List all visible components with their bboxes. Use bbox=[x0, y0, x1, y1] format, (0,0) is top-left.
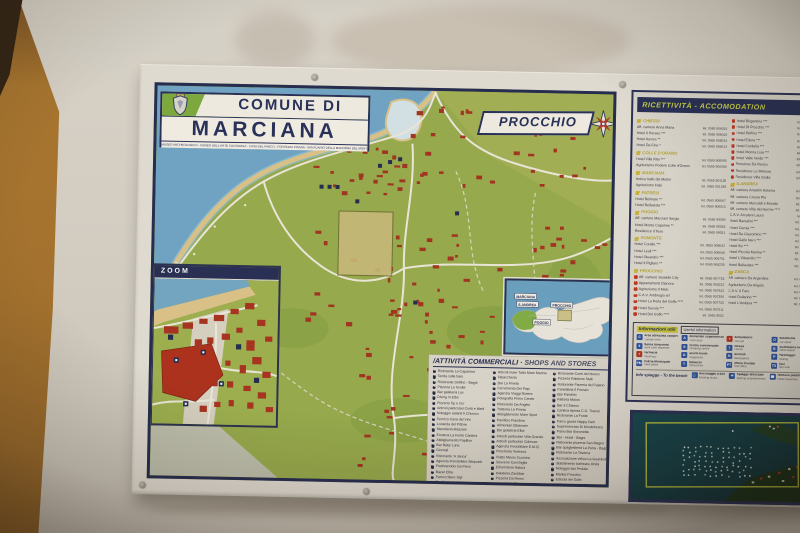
info-legend-item: BDistributore benzinaPetrol station bbox=[771, 345, 800, 353]
marker-dot: 6 bbox=[633, 306, 637, 310]
shop-number-marker: 64 bbox=[551, 473, 554, 476]
info-label: TabacchiTobacconist bbox=[689, 361, 704, 368]
info-legend-item: +AmbulatorioFirst aid bbox=[727, 336, 769, 344]
info-label: Giochi bimbiPlayground bbox=[689, 352, 708, 359]
flag-icon bbox=[636, 151, 641, 155]
playground-icon: G bbox=[681, 352, 687, 358]
accommodation-entry: Hotel Il Pigliaro **tel. 0565 906235 bbox=[634, 260, 725, 268]
marker-dot: 4 bbox=[731, 138, 735, 142]
screw bbox=[620, 82, 626, 88]
info-label: Area attrezzata camperCamper area bbox=[644, 334, 678, 342]
food-shop-icon: A bbox=[682, 335, 688, 341]
shop-number-marker: 3 bbox=[433, 381, 436, 384]
info-label: ChiesaChurch bbox=[734, 344, 744, 351]
marker-dot: 2 bbox=[634, 281, 638, 285]
info-legend-item: TTabacchiTobacconist bbox=[681, 360, 723, 368]
info-extra-items: ⚓Ancoraggio a boeMooring buoys☂Spiagge a… bbox=[691, 372, 800, 381]
shop-number-marker: 55 bbox=[552, 425, 555, 428]
info-label: Centro commercialeShopping centre bbox=[689, 344, 719, 352]
shop-number-marker: 30 bbox=[492, 408, 495, 411]
marker-dot: 1 bbox=[731, 119, 735, 123]
accommodation-phone: tel. 0565 908015 bbox=[701, 203, 726, 210]
map-panel: COMUNE DI MARCIANA MUSEO ARCHEOLOGICO - … bbox=[147, 82, 617, 487]
info-label-en: Parking bbox=[779, 357, 796, 361]
shops-title-it: ATTIVITÀ COMMERCIALI bbox=[435, 358, 518, 367]
info-label-en: Petrol station bbox=[779, 349, 800, 353]
island-inset: MARCIANA S.ANDREA POGGIO PROCCHIO bbox=[503, 278, 616, 356]
shop-number-marker: 60 bbox=[551, 452, 554, 455]
flag-icon bbox=[728, 270, 733, 274]
info-label: AutofficinaCar repair bbox=[779, 337, 795, 344]
info-label-en: Pharmacy bbox=[644, 355, 658, 359]
accommodation-phone: tel. 0565 906013 bbox=[702, 143, 727, 150]
area-label: PROCCHIO bbox=[480, 111, 617, 137]
post-office-icon: PT bbox=[726, 361, 732, 367]
info-legend-item: TXTaxiTaxi rank bbox=[771, 362, 800, 370]
marker-dot: 6 bbox=[731, 150, 735, 154]
aerial-bay-photo bbox=[631, 413, 800, 503]
shop-number-marker: 53 bbox=[552, 415, 555, 418]
accommodation-columns: CHIESSIAff. camere Anna Mariatel. 0565 9… bbox=[633, 116, 800, 324]
accommodation-entry: 7Hotel Del Golfo ****tel. 0565 9502 bbox=[633, 311, 724, 319]
info-label-en: Bank cash dispenser bbox=[644, 346, 670, 350]
screw bbox=[363, 489, 369, 495]
title-line2: MARCIANA bbox=[161, 116, 367, 143]
shop-number-marker: 1 bbox=[433, 370, 436, 373]
coat-of-arms-icon bbox=[170, 94, 190, 116]
map-sign-board: COMUNE DI MARCIANA MUSEO ARCHEOLOGICO - … bbox=[131, 64, 800, 508]
accommodation-name: Residence Villa Giulia bbox=[735, 174, 794, 181]
shop-number-marker: 39 bbox=[491, 456, 494, 459]
info-label-en: Shopping centre bbox=[689, 347, 719, 351]
zoom-inset-map bbox=[152, 278, 279, 425]
info-label: FarmaciaPharmacy bbox=[644, 351, 658, 358]
shop-number-marker: 47 bbox=[553, 383, 556, 386]
photo-of-map-sign: { "colors":{"navy":"#232d56","map_green"… bbox=[0, 0, 800, 533]
shop-number-marker: 32 bbox=[492, 419, 495, 422]
marker-dot: 8 bbox=[731, 162, 735, 166]
info-title-it: Informazioni utili bbox=[637, 326, 678, 333]
shop-number-marker: 31 bbox=[492, 414, 495, 417]
shop-number-marker: 63 bbox=[551, 468, 554, 471]
shop-number-marker: 36 bbox=[491, 440, 494, 443]
camper-area-icon: C bbox=[637, 334, 643, 340]
shop-number-marker: 25 bbox=[493, 382, 496, 385]
info-label-en: Mooring buoys bbox=[699, 376, 725, 380]
shop-entry: 65Edicola del Golfo bbox=[551, 477, 607, 483]
aerial-photo-panel bbox=[628, 410, 800, 506]
svg-text:S.ANDREA: S.ANDREA bbox=[518, 303, 537, 307]
shop-number-marker: 62 bbox=[551, 462, 554, 465]
shop-number-marker: 6 bbox=[432, 396, 435, 399]
shop-number-marker: 8 bbox=[432, 407, 435, 410]
shop-name: Bar Centrale bbox=[435, 480, 455, 486]
accommodation-title: RICETTIVITÀ - ACCOMODATION bbox=[637, 97, 800, 116]
accommodation-phone: tel. 0565 908031 bbox=[794, 301, 800, 308]
shop-number-marker: 13 bbox=[432, 433, 435, 436]
flag-icon bbox=[636, 119, 641, 123]
shop-number-marker: 14 bbox=[431, 439, 434, 442]
shop-number-marker: 12 bbox=[432, 428, 435, 431]
info-label: Ufficio PostalePost office bbox=[734, 361, 756, 368]
accommodation-entry: 10Residence Villa Giuliatel. 0565 907526 bbox=[730, 174, 800, 182]
marker-dot: 3 bbox=[634, 287, 638, 291]
accommodation-phone: tel. 0565 901339 bbox=[702, 183, 727, 190]
accommodation-name: Hotel Bellavista *** bbox=[729, 261, 793, 268]
info-title-en: Useful information bbox=[680, 326, 718, 334]
info-label-en: Playground bbox=[689, 356, 708, 360]
shop-number-marker: 54 bbox=[552, 420, 555, 423]
info-legend-item: PTUfficio PostalePost office bbox=[726, 361, 768, 369]
flag-icon bbox=[633, 269, 638, 273]
marker-dot: 7 bbox=[731, 156, 735, 160]
shop-number-marker: 65 bbox=[551, 478, 554, 481]
info-label-en: Public telephone bbox=[777, 377, 800, 381]
compass-rose-icon bbox=[590, 110, 617, 137]
svg-text:MARCIANA: MARCIANA bbox=[516, 295, 536, 299]
accommodation-entry: Hotel Bellavista ***tel. 0565 908015 bbox=[635, 202, 726, 210]
info-label: Banca bancomatBank cash dispenser bbox=[644, 343, 670, 351]
info-label-en: Newspapers bbox=[734, 357, 750, 361]
accommodation-phone: tel. 0565 908268 bbox=[702, 163, 727, 170]
pharmacy-icon: + bbox=[636, 351, 642, 357]
flag-icon bbox=[635, 191, 640, 195]
info-label: ParcheggioParking bbox=[779, 354, 796, 361]
info-label: Polizia MunicipaleTown police bbox=[644, 360, 671, 368]
bank-icon: € bbox=[636, 343, 642, 349]
shop-number-marker: 44 bbox=[491, 482, 494, 485]
screw bbox=[139, 482, 145, 488]
info-legend-item: PMPolizia MunicipaleTown police bbox=[636, 360, 678, 368]
accommodation-name: Residence Il Teso bbox=[635, 228, 701, 236]
shop-number-marker: 21 bbox=[431, 476, 434, 479]
info-label: AmbulatorioFirst aid bbox=[734, 336, 752, 343]
shop-number-marker: 24 bbox=[493, 376, 496, 379]
info-label: Telefono pubblicoPublic telephone bbox=[777, 374, 800, 382]
info-legend-item: †ChiesaChurch bbox=[726, 344, 768, 352]
mooring-buoys-icon: ⚓ bbox=[691, 372, 697, 378]
petrol-station-icon: B bbox=[771, 345, 777, 351]
shops-title-en: SHOPS AND STORES bbox=[524, 360, 596, 368]
shop-number-marker: 28 bbox=[492, 398, 495, 401]
accommodation-entry: Hotel Da Fine *tel. 0565 906013 bbox=[636, 142, 727, 150]
title-line1: COMUNE DI bbox=[210, 95, 368, 115]
shop-number-marker: 61 bbox=[551, 457, 554, 460]
info-label: GiornaliNewspapers bbox=[734, 353, 750, 360]
shop-number-marker: 4 bbox=[433, 386, 436, 389]
info-legend-item: +FarmaciaPharmacy bbox=[636, 351, 678, 359]
wall-stain bbox=[235, 12, 315, 67]
flag-icon bbox=[634, 237, 639, 241]
accommodation-entry: Residence Il Tesotel. 0565 99031 bbox=[635, 228, 726, 236]
wall-stain bbox=[330, 6, 630, 76]
shop-number-marker: 38 bbox=[491, 451, 494, 454]
shop-number-marker: 19 bbox=[431, 465, 434, 468]
shops-column: 45Ristorante Conti del Nuovo46Pizzeria R… bbox=[551, 371, 609, 487]
shop-number-marker: 46 bbox=[553, 378, 556, 381]
taxi-icon: TX bbox=[771, 362, 777, 368]
shop-number-marker: 23 bbox=[493, 371, 496, 374]
shop-number-marker: 15 bbox=[431, 444, 434, 447]
shop-number-marker: 26 bbox=[493, 387, 496, 390]
shop-entry: 44Lavanderia Blu bbox=[491, 481, 547, 487]
shop-number-marker: 10 bbox=[432, 418, 435, 421]
info-legend-item: AAlimentari supermercatoFood shop bbox=[682, 335, 724, 343]
accommodation-phone: tel. 0565 906235 bbox=[700, 261, 725, 268]
accommodation-phone: tel. 0565 99031 bbox=[702, 229, 725, 236]
shop-number-marker: 51 bbox=[552, 404, 555, 407]
info-label-en: Tobacconist bbox=[689, 364, 704, 368]
info-label: Distributore benzinaPetrol station bbox=[779, 345, 800, 353]
public-phone-icon: ☎ bbox=[770, 374, 776, 380]
beach-note: Info spiagge - To the beach bbox=[636, 372, 688, 378]
parking-icon: P bbox=[771, 354, 777, 360]
shop-number-marker: 50 bbox=[552, 399, 555, 402]
info-bottom-row: Info spiagge - To the beach ⚓Ancoraggio … bbox=[636, 369, 800, 382]
info-legend-item: CArea attrezzata camperCamper area bbox=[637, 334, 679, 342]
info-label-en: Car repair bbox=[779, 340, 795, 344]
flag-icon bbox=[730, 183, 735, 187]
accommodation-name: Hotel Bellavista *** bbox=[635, 202, 699, 209]
shop-number-marker: 9 bbox=[432, 412, 435, 415]
shop-number-marker: 35 bbox=[492, 435, 495, 438]
info-legend-item: ⚓Ancoraggio a boeMooring buoys bbox=[691, 372, 725, 380]
shop-number-marker: 5 bbox=[432, 391, 435, 394]
info-label-en: Food shop bbox=[689, 339, 724, 343]
accommodation-phone: tel. 0565 908015 bbox=[794, 263, 800, 270]
marker-dot: 9 bbox=[730, 169, 734, 173]
shop-number-marker: 49 bbox=[552, 394, 555, 397]
flag-icon bbox=[635, 171, 640, 175]
shop-name: Lavanderia Blu bbox=[495, 481, 518, 487]
info-label: Alimentari supermercatoFood shop bbox=[689, 335, 724, 343]
info-legend-item: ☎Telefono pubblicoPublic telephone bbox=[769, 374, 800, 382]
shop-number-marker: 43 bbox=[491, 477, 494, 480]
tobacconist-icon: T bbox=[681, 360, 687, 366]
info-legend-grid: CArea attrezzata camperCamper areaAAlime… bbox=[636, 334, 800, 370]
marker-dot: 4 bbox=[633, 293, 637, 297]
accommodation-name: Hotel L'Andana *** bbox=[728, 300, 792, 307]
shop-number-marker: 40 bbox=[491, 461, 494, 464]
info-label-en: First aid bbox=[734, 340, 752, 344]
svg-text:PROCCHIO: PROCCHIO bbox=[552, 304, 571, 308]
shop-number-marker: 18 bbox=[431, 460, 434, 463]
town-police-icon: PM bbox=[636, 360, 642, 366]
info-legend-item: OAutofficinaCar repair bbox=[772, 337, 800, 345]
shops-panel: /ATTIVITÀ COMMERCIALI · SHOPS AND STORES… bbox=[426, 355, 613, 488]
shop-number-marker: 37 bbox=[491, 445, 494, 448]
elba-island-map: MARCIANA S.ANDREA POGGIO PROCCHIO bbox=[505, 280, 616, 354]
shop-number-marker: 45 bbox=[553, 372, 556, 375]
info-legend-item: GGiochi bimbiPlayground bbox=[681, 352, 723, 360]
info-label-en: Camper area bbox=[644, 338, 678, 342]
info-label: Spiagge attrezzateBathing establishments bbox=[737, 373, 766, 381]
info-legend-item: NGiornaliNewspapers bbox=[726, 353, 768, 361]
area-label-text: PROCCHIO bbox=[486, 114, 590, 129]
marker-dot: 3 bbox=[731, 132, 735, 136]
accommodation-column-right: 1Hotel Brigantino ***tel. 0565 9074532Ho… bbox=[727, 118, 800, 324]
shop-number-marker: 42 bbox=[491, 472, 494, 475]
shop-number-marker: 57 bbox=[552, 436, 555, 439]
flag-icon bbox=[635, 211, 640, 215]
accommodation-name: Hotel Il Pigliaro ** bbox=[634, 260, 698, 267]
car-repair-icon: O bbox=[772, 337, 778, 343]
accommodation-phone: tel. 0565 907526 bbox=[796, 175, 800, 182]
accommodation-panel: RICETTIVITÀ - ACCOMODATION CHIESSIAff. c… bbox=[625, 90, 800, 406]
shop-number-marker: 7 bbox=[432, 402, 435, 405]
shop-number-marker: 52 bbox=[552, 409, 555, 412]
marker-dot: 5 bbox=[633, 300, 637, 304]
info-label: TaxiTaxi rank bbox=[778, 362, 789, 369]
accommodation-name: Hotel Da Fine * bbox=[636, 142, 700, 149]
shopping-centre-icon: S bbox=[681, 343, 687, 349]
shop-entry: 22Bar Centrale bbox=[431, 480, 487, 486]
shop-number-marker: 56 bbox=[552, 431, 555, 434]
info-label-en: Taxi rank bbox=[778, 366, 789, 370]
info-label-en: Town police bbox=[644, 363, 671, 367]
zoom-inset: ZOOM bbox=[150, 263, 281, 428]
marker-dot: 5 bbox=[731, 144, 735, 148]
info-legend-item: PParcheggioParking bbox=[771, 354, 800, 362]
zoom-area-highlight bbox=[338, 211, 393, 276]
accommodation-entry: Hotel L'Andana ***tel. 0565 908031 bbox=[728, 300, 800, 308]
shop-number-marker: 58 bbox=[551, 441, 554, 444]
shop-number-marker: 48 bbox=[553, 388, 556, 391]
accommodation-entry: Agriturismo Podere Colle d'Oranotel. 056… bbox=[636, 162, 727, 170]
marker-dot: 2 bbox=[731, 125, 735, 129]
accommodation-name: Agriturismo Fabi bbox=[636, 182, 700, 189]
shop-number-marker: 16 bbox=[431, 449, 434, 452]
useful-information-box: Informazioni utili Useful information CA… bbox=[631, 322, 800, 400]
marker-dot: 7 bbox=[633, 312, 637, 316]
shop-number-marker: 34 bbox=[492, 429, 495, 432]
accommodation-phone: tel. 0565 9502 bbox=[703, 312, 724, 319]
accommodation-name: Hotel Del Golfo **** bbox=[638, 311, 701, 318]
info-legend-item: ☂Spiagge attrezzateBathing establishment… bbox=[729, 373, 766, 381]
shops-column: 1Ristorante La Caparrina2Tenda sulla bai… bbox=[431, 369, 489, 487]
info-label-en: Post office bbox=[734, 365, 756, 369]
shop-number-marker: 20 bbox=[431, 471, 434, 474]
shop-number-marker: 11 bbox=[432, 423, 435, 426]
accommodation-entry: Hotel Bellavista ***tel. 0565 908015 bbox=[729, 261, 800, 269]
info-legend-item: SCentro commercialeShopping centre bbox=[681, 343, 723, 351]
svg-text:POGGIO: POGGIO bbox=[534, 321, 549, 325]
shop-number-marker: 59 bbox=[551, 446, 554, 449]
marker-dot: 1 bbox=[634, 275, 638, 279]
shop-number-marker: 2 bbox=[433, 375, 436, 378]
screw bbox=[312, 74, 318, 80]
shop-number-marker: 41 bbox=[491, 466, 494, 469]
info-label: Ancoraggio a boeMooring buoys bbox=[699, 372, 725, 380]
info-label-en: Church bbox=[734, 348, 744, 352]
newsagent-icon: N bbox=[726, 353, 732, 359]
accommodation-column-left: CHIESSIAff. camere Anna Mariatel. 0565 9… bbox=[633, 116, 728, 322]
info-label-en: Bathing establishments bbox=[737, 377, 766, 381]
title-block: COMUNE DI MARCIANA MUSEO ARCHEOLOGICO - … bbox=[159, 91, 370, 151]
marker-dot: 10 bbox=[730, 175, 734, 179]
shop-number-marker: 33 bbox=[492, 424, 495, 427]
shop-number-marker: 22 bbox=[431, 481, 434, 484]
accommodation-name: Agriturismo Podere Colle d'Orano bbox=[636, 162, 700, 169]
shops-columns: 1Ristorante La Caparrina2Tenda sulla bai… bbox=[431, 369, 609, 488]
shop-number-marker: 17 bbox=[431, 455, 434, 458]
bathing-establishment-icon: ☂ bbox=[729, 373, 735, 379]
title-top-band: COMUNE DI bbox=[162, 93, 368, 119]
info-legend-item: €Banca bancomatBank cash dispenser bbox=[636, 343, 678, 351]
shops-column: 23Articoli mare Tutto Mare Marina24Tabac… bbox=[491, 370, 549, 487]
surgery-icon: + bbox=[727, 336, 733, 342]
shop-name: Edicola del Golfo bbox=[556, 477, 583, 483]
lagoon bbox=[386, 99, 422, 141]
shop-number-marker: 27 bbox=[492, 392, 495, 395]
shop-number-marker: 29 bbox=[492, 403, 495, 406]
church-icon: † bbox=[726, 344, 732, 350]
accommodation-entry: Agriturismo Fabitel. 0565 901339 bbox=[636, 182, 727, 190]
